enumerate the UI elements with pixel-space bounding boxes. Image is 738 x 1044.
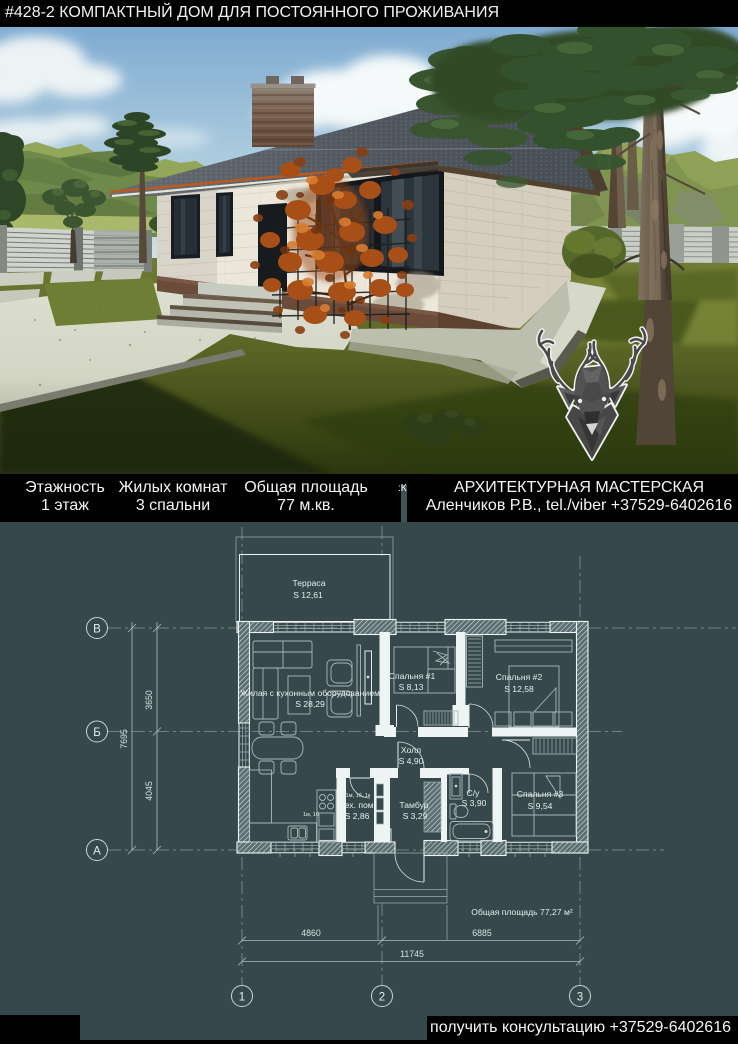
svg-text:В: В bbox=[93, 624, 101, 636]
svg-text:S 4,90: S 4,90 bbox=[399, 756, 424, 766]
svg-text:S 12,61: S 12,61 bbox=[293, 590, 323, 600]
svg-text:Общая площадь 77,27 м²: Общая площадь 77,27 м² bbox=[471, 907, 573, 917]
svg-text:Спальня #2: Спальня #2 bbox=[496, 672, 543, 682]
svg-text:Спальня #1: Спальня #1 bbox=[389, 671, 436, 681]
svg-text:4860: 4860 bbox=[301, 928, 321, 938]
svg-text:S 3,29: S 3,29 bbox=[403, 811, 428, 821]
svg-text:Спальня #3: Спальня #3 bbox=[517, 789, 564, 799]
svg-text:7695: 7695 bbox=[119, 729, 129, 749]
svg-text:2: 2 bbox=[379, 992, 385, 1004]
svg-text:6885: 6885 bbox=[472, 928, 492, 938]
svg-text:Б: Б bbox=[93, 727, 101, 739]
svg-text:3650: 3650 bbox=[144, 690, 154, 710]
svg-text:S 28,29: S 28,29 bbox=[295, 699, 325, 709]
svg-text:S 12,58: S 12,58 bbox=[504, 684, 534, 694]
svg-text:Тех. пом.: Тех. пом. bbox=[340, 800, 376, 810]
svg-text:4045: 4045 bbox=[144, 781, 154, 801]
svg-text:Тамбур: Тамбур bbox=[399, 800, 428, 810]
svg-text:1м, 1б, 1к: 1м, 1б, 1к bbox=[346, 793, 371, 799]
svg-text:Холл: Холл bbox=[401, 745, 421, 755]
svg-text:С/у: С/у bbox=[467, 788, 481, 798]
svg-text:1: 1 bbox=[239, 992, 245, 1004]
svg-text:1м, 1б: 1м, 1б bbox=[303, 812, 319, 818]
svg-text:3: 3 bbox=[577, 992, 583, 1004]
svg-text:Терраса: Терраса bbox=[293, 578, 326, 588]
svg-text:S 2,86: S 2,86 bbox=[345, 811, 370, 821]
svg-text:11745: 11745 bbox=[400, 949, 424, 959]
svg-text:А: А bbox=[93, 846, 101, 858]
svg-text:Жилая с кухонным оборудованием: Жилая с кухонным оборудованием bbox=[240, 688, 380, 698]
svg-text:S 9,54: S 9,54 bbox=[528, 801, 553, 811]
svg-text:S 8,13: S 8,13 bbox=[399, 682, 424, 692]
svg-text:S 3,90: S 3,90 bbox=[462, 798, 487, 808]
